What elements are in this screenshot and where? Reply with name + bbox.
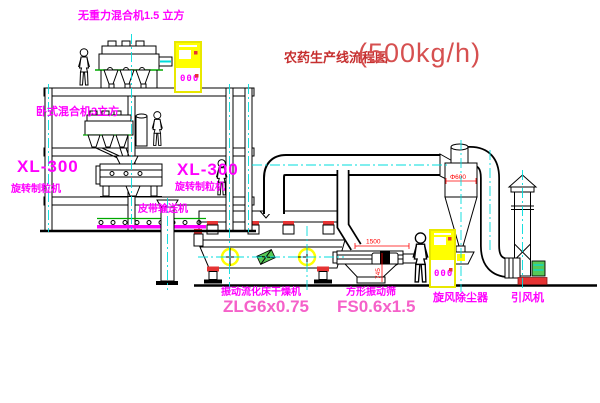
- fan-motor-icon: [532, 261, 545, 276]
- label-granulator-left-model: XL-300: [17, 158, 79, 175]
- indicator-lamp-icon: [195, 74, 199, 78]
- cyclone-diameter-dim: Φ600: [450, 174, 466, 181]
- exhaust-duct: [274, 165, 440, 214]
- gravity-free-mixer: [95, 41, 172, 88]
- sieve-length-dim: 1500: [366, 239, 381, 246]
- label-granulator-right-model: XL-300: [177, 161, 239, 178]
- sieve-height-dim: 745: [375, 268, 382, 279]
- granulator-machine: [96, 156, 162, 197]
- cabinet-window: [434, 237, 446, 245]
- label-dryer-model: ZLG6x0.75: [223, 298, 309, 315]
- label-fan: 引风机: [511, 293, 544, 304]
- indicator-lamp-icon: [448, 237, 452, 241]
- label-granulator-left-name: 旋转制粒机: [11, 185, 61, 195]
- label-cyclone: 旋风除尘器: [433, 293, 488, 304]
- label-belt-conveyor: 皮带输送机: [138, 205, 188, 215]
- flow-diagram-canvas: 000: [0, 0, 600, 403]
- label-sieve-model: FS0.6x1.5: [337, 298, 415, 315]
- roof-slab: [44, 88, 254, 96]
- fluid-bed-dryer: [194, 211, 345, 284]
- label-granulator-right-name: 旋转制粒机: [175, 183, 225, 193]
- control-cabinet-roof: 000: [175, 42, 201, 92]
- belt-conveyor: [97, 219, 206, 229]
- indicator-lamp-icon: [449, 268, 453, 272]
- control-cabinet-floor: 000: [430, 230, 455, 287]
- label-second-mixer: 卧式混合机3立方: [36, 107, 119, 118]
- cabinet-window: [179, 50, 191, 59]
- worker-figure: [79, 49, 90, 85]
- indicator-lamp-icon: [194, 51, 198, 55]
- second-floor-slab: [44, 148, 254, 156]
- page-title-capacity: (500kg/h): [358, 40, 481, 67]
- worker-figure: [413, 233, 428, 282]
- worker-figure: [152, 112, 162, 146]
- label-top-mixer: 无重力混合机1.5 立方: [78, 11, 184, 22]
- conveyor-belt: [97, 225, 206, 229]
- dryer-spring-mounts: [204, 267, 332, 284]
- sieve-feed-pipe: [343, 170, 356, 247]
